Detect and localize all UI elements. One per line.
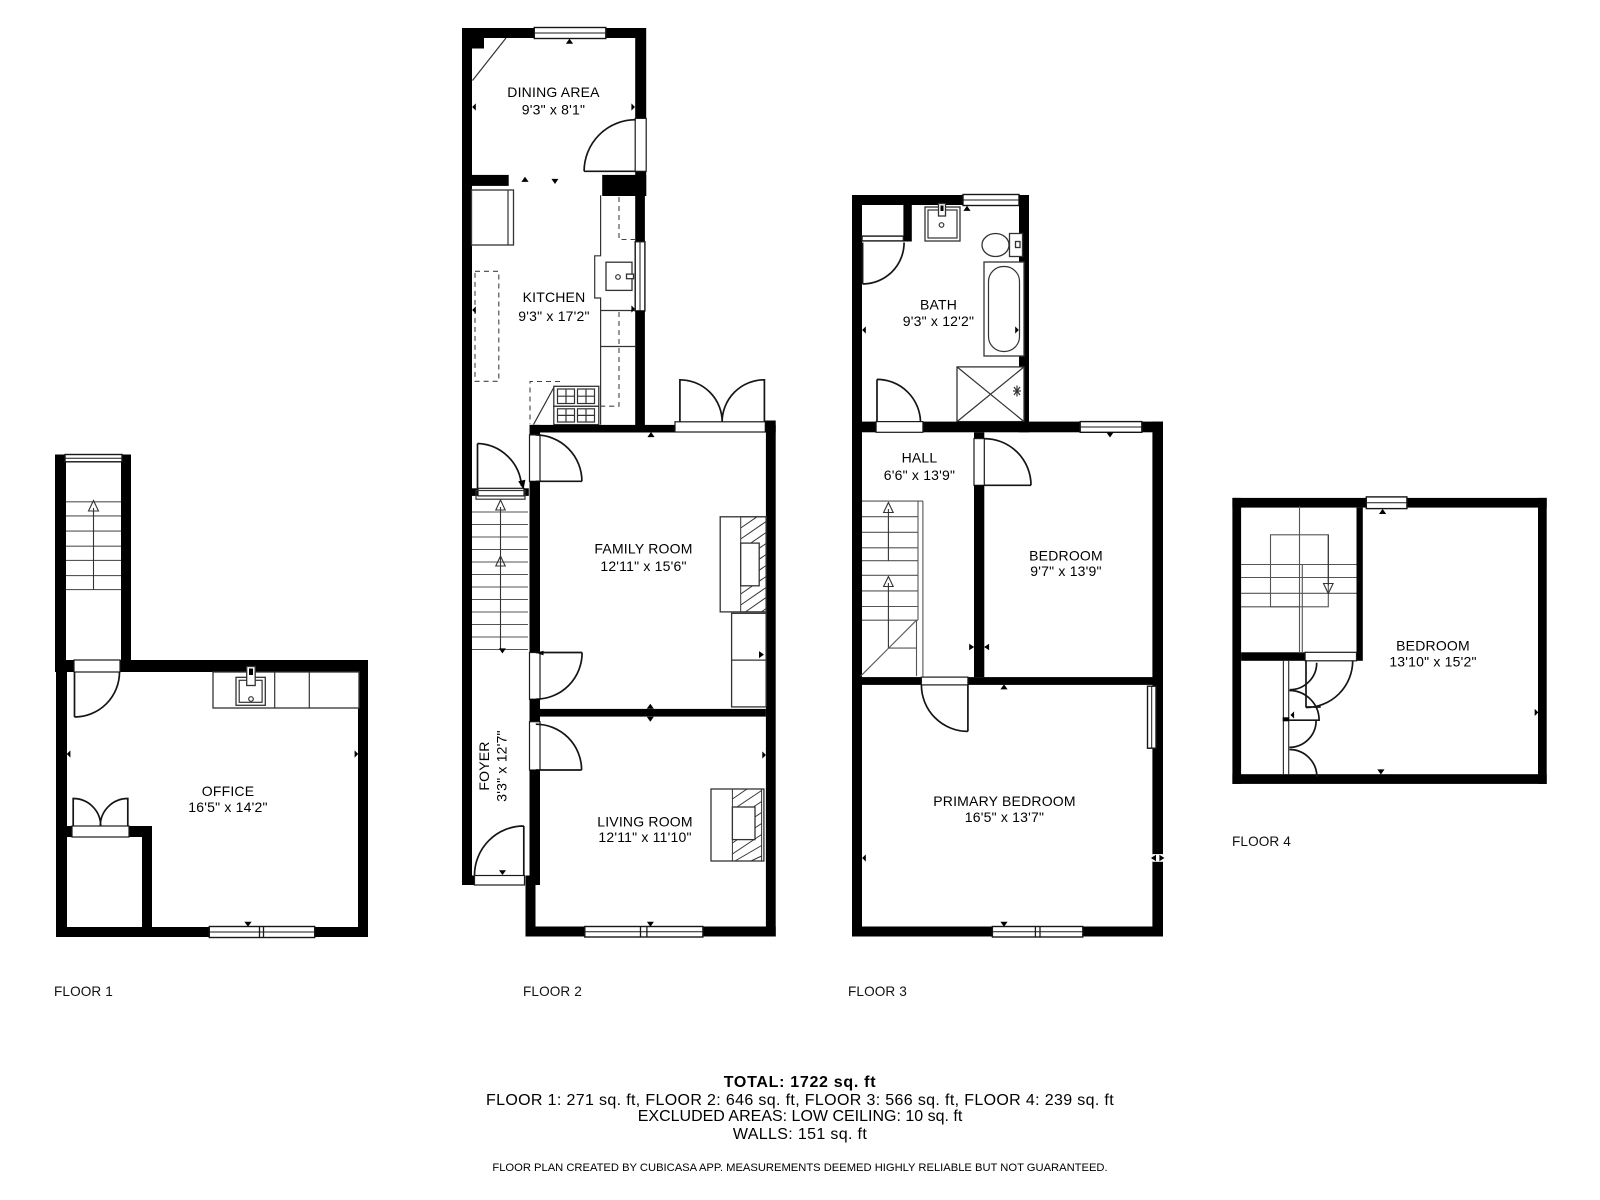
svg-text:FLOOR 1: FLOOR 1	[54, 984, 113, 999]
svg-text:FOYER: FOYER	[476, 741, 492, 790]
svg-text:LIVING ROOM: LIVING ROOM	[597, 814, 693, 830]
svg-text:13'10" x 15'2": 13'10" x 15'2"	[1389, 654, 1476, 670]
svg-text:WALLS: 151 sq. ft: WALLS: 151 sq. ft	[733, 1126, 868, 1143]
svg-text:12'11" x 15'6": 12'11" x 15'6"	[600, 558, 686, 574]
svg-text:TOTAL: 1722 sq. ft: TOTAL: 1722 sq. ft	[724, 1074, 876, 1091]
svg-text:16'5" x 14'2": 16'5" x 14'2"	[188, 799, 267, 815]
svg-text:FLOOR 4: FLOOR 4	[1232, 834, 1291, 849]
svg-text:9'3" x 17'2": 9'3" x 17'2"	[518, 308, 589, 324]
svg-text:KITCHEN: KITCHEN	[523, 289, 586, 305]
svg-text:16'5" x 13'7": 16'5" x 13'7"	[965, 809, 1044, 825]
svg-text:HALL: HALL	[902, 450, 938, 466]
svg-text:9'7" x 13'9": 9'7" x 13'9"	[1030, 563, 1101, 579]
svg-text:FLOOR PLAN CREATED BY CUBICASA: FLOOR PLAN CREATED BY CUBICASA APP. MEAS…	[492, 1162, 1107, 1174]
svg-text:BEDROOM: BEDROOM	[1029, 548, 1103, 564]
svg-text:6'6" x 13'9": 6'6" x 13'9"	[884, 467, 955, 483]
svg-text:12'11" x 11'10": 12'11" x 11'10"	[598, 829, 691, 845]
svg-text:DINING AREA: DINING AREA	[507, 84, 600, 100]
svg-text:9'3" x 12'2": 9'3" x 12'2"	[903, 313, 974, 329]
svg-text:EXCLUDED AREAS: LOW CEILING: 1: EXCLUDED AREAS: LOW CEILING: 10 sq. ft	[638, 1108, 963, 1125]
svg-text:FLOOR 2: FLOOR 2	[523, 984, 582, 999]
svg-text:BEDROOM: BEDROOM	[1396, 638, 1470, 654]
svg-text:FAMILY ROOM: FAMILY ROOM	[594, 541, 692, 557]
svg-text:9'3" x 8'1": 9'3" x 8'1"	[522, 102, 585, 118]
svg-text:PRIMARY BEDROOM: PRIMARY BEDROOM	[933, 793, 1076, 809]
svg-text:BATH: BATH	[920, 297, 957, 313]
svg-text:FLOOR 1: 271 sq. ft, FLOOR 2:: FLOOR 1: 271 sq. ft, FLOOR 2: 646 sq. ft…	[486, 1092, 1114, 1109]
svg-text:OFFICE: OFFICE	[202, 783, 255, 799]
svg-text:3'3" x 12'7": 3'3" x 12'7"	[494, 730, 510, 801]
svg-text:FLOOR 3: FLOOR 3	[848, 984, 907, 999]
